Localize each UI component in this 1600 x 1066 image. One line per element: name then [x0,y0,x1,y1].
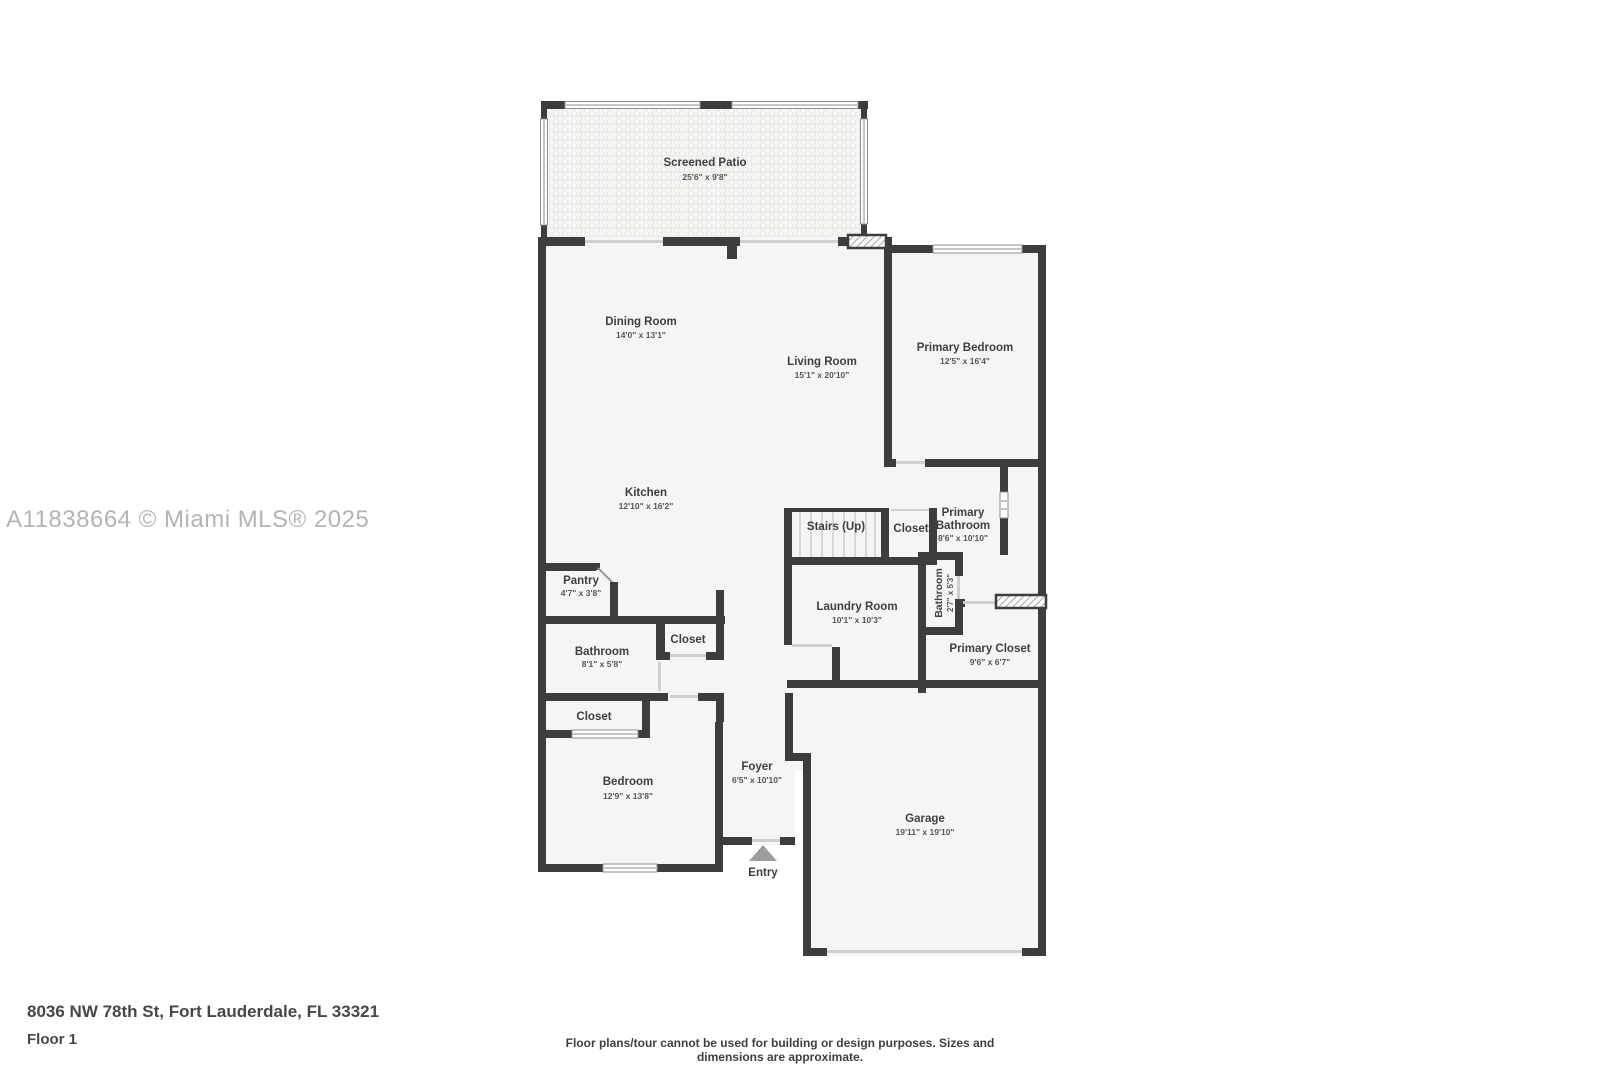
label-entry: Entry [748,867,778,879]
floor-plan-svg: Screened Patio 25'6" x 9'8" Dining Room … [0,0,1600,1066]
entry-arrow-icon [749,845,777,861]
label-laundry-room: Laundry Room [816,601,897,613]
label-kitchen: Kitchen [625,487,667,499]
label-pantry: Pantry [563,575,599,587]
label-stair-closet: Closet [893,523,928,535]
label-primary-closet: Primary Closet [949,643,1030,655]
dims-living-room: 15'1" x 20'10" [795,370,850,380]
disclaimer-text: Floor plans/tour cannot be used for buil… [540,1036,1020,1064]
label-stairs: Stairs (Up) [807,521,865,533]
label-primary-bathroom-2: Bathroom [936,520,990,532]
label-screened-patio: Screened Patio [663,157,746,169]
dims-dining-room: 14'0" x 13'1" [616,330,666,340]
label-bedroom: Bedroom [603,776,653,788]
dims-foyer: 6'5" x 10'10" [732,775,782,785]
dims-kitchen: 12'10" x 16'2" [619,501,674,511]
dims-bedroom: 12'9" x 13'8" [603,791,653,801]
bedroom-closet-door [572,730,638,738]
bedroom-window [603,864,657,872]
label-primary-bedroom: Primary Bedroom [917,342,1014,354]
primary-bedroom-window [933,245,1022,253]
property-address: 8036 NW 78th St, Fort Lauderdale, FL 333… [27,1002,379,1022]
label-bedroom-closet: Closet [576,711,611,723]
label-dining-room: Dining Room [605,316,677,328]
patio-screen-floor [546,104,865,237]
label-small-bathroom-group: Bathroom 2'7" x 5'3" [933,568,955,618]
dims-garage: 19'11" x 19'10" [896,827,955,837]
floor-label: Floor 1 [27,1031,77,1048]
dims-small-bathroom: 2'7" x 5'3" [946,574,955,612]
hatched-window-primary [996,595,1046,608]
dims-bathroom: 8'1" x 5'8" [582,659,622,669]
label-small-bathroom: Bathroom [933,568,945,618]
label-hall-closet: Closet [670,634,705,646]
hatched-window-living [848,235,886,248]
dims-screened-patio: 25'6" x 9'8" [682,172,727,182]
dims-primary-bathroom: 8'6" x 10'10" [938,533,988,543]
dims-pantry: 4'7" x 3'8" [561,588,601,598]
label-primary-bathroom-1: Primary [942,507,985,519]
label-garage: Garage [905,813,945,825]
dims-primary-closet: 9'6" x 6'7" [970,657,1010,667]
primary-bathroom-fixture [1000,492,1008,518]
dims-laundry-room: 10'1" x 10'3" [832,615,882,625]
floor-plan-page: A11838664 © Miami MLS® 2025 [0,0,1600,1066]
label-foyer: Foyer [741,761,773,773]
label-bathroom: Bathroom [575,646,629,658]
dims-primary-bedroom: 12'5" x 16'4" [940,356,990,366]
label-living-room: Living Room [787,356,857,368]
